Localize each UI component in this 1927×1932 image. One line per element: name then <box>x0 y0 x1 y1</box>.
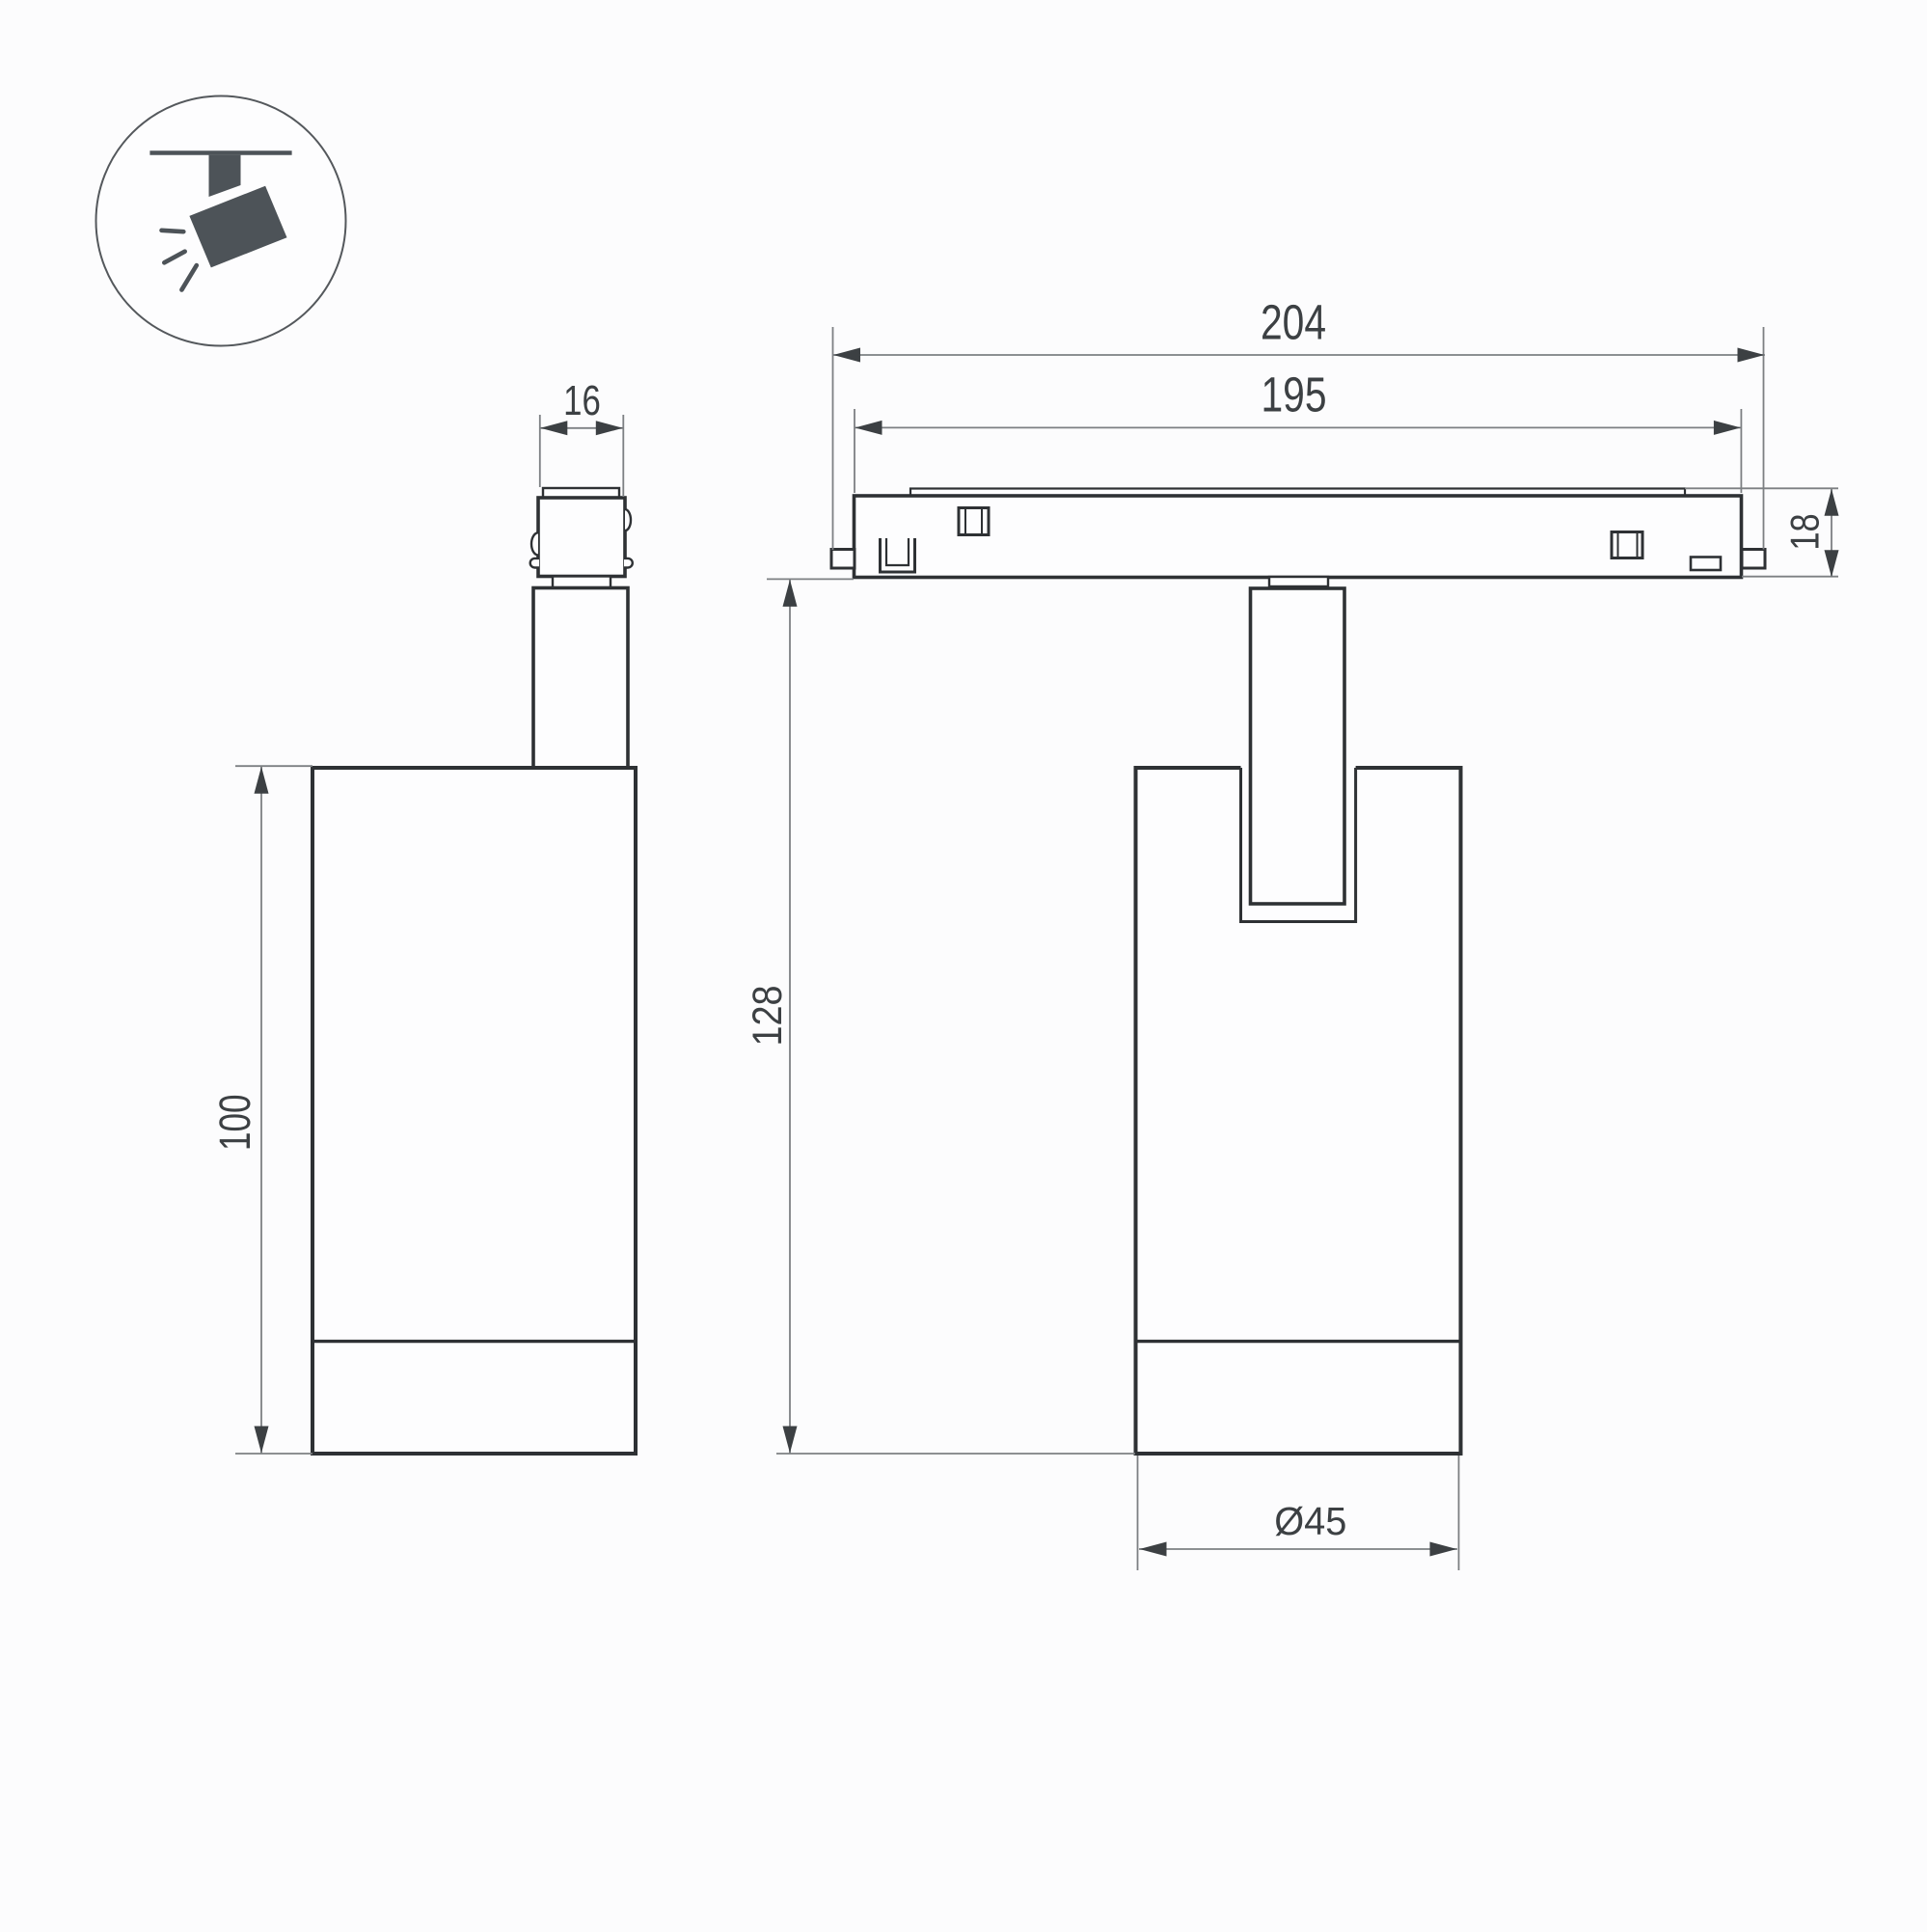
svg-text:18: 18 <box>1782 513 1828 550</box>
svg-text:204: 204 <box>1261 294 1326 349</box>
svg-text:128: 128 <box>744 985 791 1046</box>
svg-text:100: 100 <box>210 1095 260 1151</box>
svg-text:16: 16 <box>563 377 601 424</box>
svg-text:Ø45: Ø45 <box>1274 1499 1346 1544</box>
svg-text:195: 195 <box>1261 367 1326 422</box>
